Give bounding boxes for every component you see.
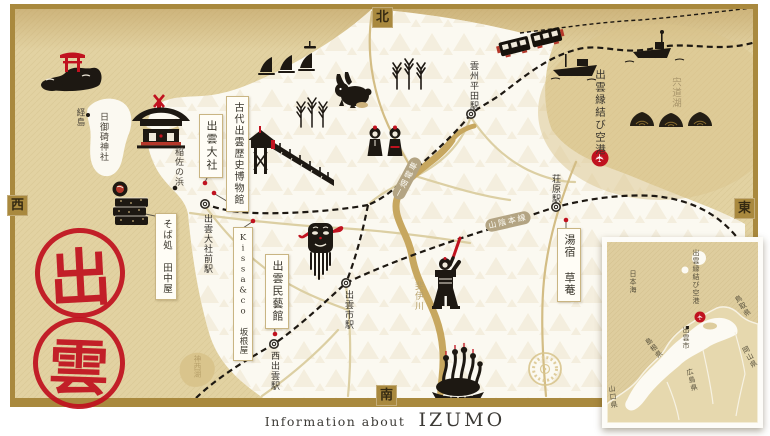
label-izumo-enmusubi-airport: 出雲縁結び空港 — [593, 69, 608, 157]
label-lake-jinzai: 神西湖 — [192, 355, 203, 378]
compass-west: 西 — [7, 195, 28, 216]
label-ancient-izumo-history-museum: 古代出雲歴史博物館 — [226, 96, 249, 212]
caption-prefix: Information about — [265, 414, 406, 429]
inset-airport-badge: ✈ — [695, 312, 706, 323]
label-hinomisaki-shrine: 日御碕神社 — [97, 112, 110, 162]
label-inasa-no-hama: 稲佐の浜 — [172, 147, 185, 187]
label-izumo-mingeikan: 出雲民藝館 — [265, 254, 289, 329]
inset-label-izumo-city: 出雲市 — [681, 326, 691, 350]
inset-locator-map: ✈ 日本海 出雲縁結び空港 出雲市 島根県 鳥取県 岡山県 広島県 山口県 — [602, 237, 763, 428]
compass-south: 南 — [376, 385, 397, 406]
inset-label-sea-of-japan: 日本海 — [628, 270, 638, 294]
izumo-tourist-map-poster: ✈ 北 南 西 東 出 雲 古代出雲歴史博物館 出雲大社 そば処 田中屋 Kis… — [0, 0, 770, 436]
inset-label-airport: 出雲縁結び空港 — [691, 249, 701, 305]
label-lake-shinji: 宍道湖 — [668, 77, 682, 109]
label-station-unshu-hirata: 雲州平田駅 — [467, 61, 480, 111]
label-fumishima: 経島 — [74, 108, 86, 127]
label-station-izumo-taisha-mae: 出雲大社前駅 — [201, 214, 214, 274]
shijimi-clams-icon — [630, 112, 712, 127]
compass-east: 東 — [734, 198, 755, 219]
compass-north: 北 — [372, 7, 393, 28]
label-station-nishi-izumo: 西出雲駅 — [268, 351, 281, 391]
label-station-izumoshi: 出雲市駅 — [342, 290, 355, 330]
label-soba-tanakaya: そば処 田中屋 — [155, 213, 177, 300]
caption-title: IZUMO — [418, 409, 505, 431]
svg-text:✈: ✈ — [697, 314, 705, 320]
label-kissa-and-co-sakaneya: Kissa&co 坂根屋 — [233, 227, 253, 361]
label-yuyado-soan: 湯宿 草菴 — [557, 228, 581, 302]
label-hii-river: 斐伊川 — [412, 281, 425, 311]
label-izumo-taisha: 出雲大社 — [199, 114, 223, 178]
label-station-shobara: 荘原駅 — [549, 174, 562, 204]
